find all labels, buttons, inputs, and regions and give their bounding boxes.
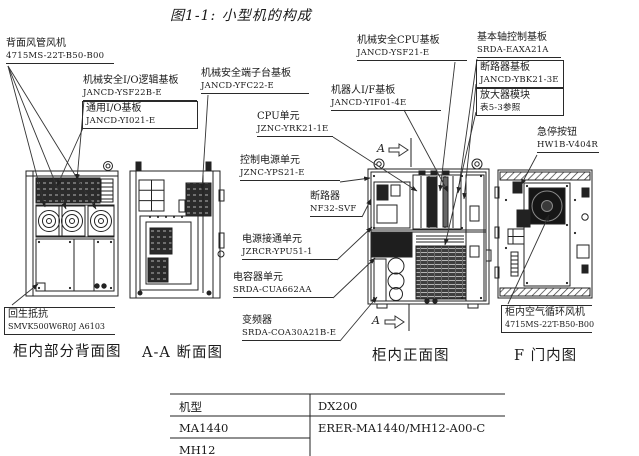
callout-cpu-unit: CPU单元 JZNC-YRK21-1E [257,111,333,137]
power-on-unit-label: 电源接通单元 [242,234,337,246]
callout-control-power-unit: 控制电源单元 JZNC-YPS21-E [240,155,340,181]
inverter-part: SRDA-COA30A21B-E [242,327,340,339]
callout-general-io-board: 通用I/O基板 JANCD-YI021-E [82,101,198,129]
control-power-unit-part: JZNC-YPS21-E [240,167,340,179]
rear-duct-fan-part: 4715MS-22T-B50-B00 [6,50,114,62]
callout-robot-if-board: 机器人I/F基板 JANCD-YIF01-4E [331,85,441,111]
breaker-board-label: 断路器基板 [480,62,560,74]
callout-inverter: 变频器 SRDA-COA30A21B-E [242,315,340,341]
table-cell-model-1: MA1440 [179,421,228,435]
caption-front-view: 柜内正面图 [372,344,450,365]
cabinet-air-fan-label: 柜内空气循环风机 [505,307,589,319]
table-header-model: 机型 [179,399,202,415]
section-view-drawing [130,162,224,298]
basic-axis-board-part: SRDA-EAXA21A [477,44,561,56]
estop-button-label: 急停按钮 [537,127,599,139]
amplifier-module-part: 表5-3参照 [480,102,560,114]
cpu-unit-label: CPU单元 [257,111,333,123]
cabinet-air-fan-part: 4715MS-22T-B50-B00 [505,319,589,331]
callout-ms-cpu-board: 机械安全CPU基板 JANCD-YSF21-E [357,35,467,61]
cpu-unit-part: JZNC-YRK21-1E [257,123,333,135]
caption-section-view: A-A 断面图 [142,341,223,362]
breaker-part: NF32-SVF [310,203,362,215]
ms-cpu-board-label: 机械安全CPU基板 [357,35,467,47]
amplifier-module-label: 放大器模块 [480,90,560,102]
front-view-drawing [368,138,491,331]
callout-basic-axis-board: 基本轴控制基板 SRDA-EAXA21A [477,32,561,58]
callout-amplifier-module: 放大器模块 表5-3参照 [476,88,564,116]
section-marker-top: A [377,142,385,155]
callout-breaker-board: 断路器基板 JANCD-YBK21-3E [476,60,564,88]
inverter-label: 变频器 [242,315,340,327]
callout-ms-terminal-board: 机械安全端子台基板 JANCD-YFC22-E [201,68,309,94]
regen-resistor-part: SMVK500W6R0J A6103 [8,321,112,333]
caption-door-view: F 门内图 [514,344,577,365]
ms-terminal-board-part: JANCD-YFC22-E [201,80,309,92]
breaker-label: 断路器 [310,191,362,203]
figure-title: 图1-1: 小型机的构成 [170,5,312,25]
capacitor-unit-part: SRDA-CUA662AA [233,284,333,296]
general-io-board-part: JANCD-YI021-E [86,115,194,127]
basic-axis-board-label: 基本轴控制基板 [477,32,561,44]
regen-resistor-label: 回生抵抗 [8,309,112,321]
general-io-board-label: 通用I/O基板 [86,103,194,115]
ms-cpu-board-part: JANCD-YSF21-E [357,47,467,59]
callout-ms-io-logic-board: 机械安全I/O逻辑基板 JANCD-YSF22B-E [83,75,197,101]
breaker-board-part: JANCD-YBK21-3E [480,74,560,86]
door-view-drawing [495,170,592,298]
capacitor-unit-label: 电容器单元 [233,272,333,284]
estop-button-part: HW1B-V404R [537,139,599,151]
callout-capacitor-unit: 电容器单元 SRDA-CUA662AA [233,272,333,298]
callout-rear-duct-fan: 背面风管风机 4715MS-22T-B50-B00 [6,38,114,64]
robot-if-board-label: 机器人I/F基板 [331,85,441,97]
table-cell-model-2: MH12 [179,443,215,456]
control-power-unit-label: 控制电源单元 [240,155,340,167]
ms-terminal-board-label: 机械安全端子台基板 [201,68,309,80]
table-header-controller: DX200 [318,399,357,413]
table-cell-order-no: ERER-MA1440/MH12-A00-C [318,421,485,435]
ms-io-logic-board-part: JANCD-YSF22B-E [83,87,197,99]
callout-power-on-unit: 电源接通单元 JZRCR-YPU51-1 [242,234,337,260]
ms-io-logic-board-label: 机械安全I/O逻辑基板 [83,75,197,87]
manual-page: 图1-1: 小型机的构成 背面风管风机 4715MS-22T-B50-B00 机… [0,0,639,456]
callout-cabinet-air-fan: 柜内空气循环风机 4715MS-22T-B50-B00 [501,305,592,333]
callout-estop-button: 急停按钮 HW1B-V404R [537,127,599,153]
rear-view-drawing [26,162,118,297]
caption-rear-view: 柜内部分背面图 [13,340,122,361]
power-on-unit-part: JZRCR-YPU51-1 [242,246,337,258]
callout-breaker: 断路器 NF32-SVF [310,191,362,217]
callout-regen-resistor: 回生抵抗 SMVK500W6R0J A6103 [4,307,115,335]
robot-if-board-part: JANCD-YIF01-4E [331,97,441,109]
section-marker-bottom: A [372,314,380,327]
rear-duct-fan-label: 背面风管风机 [6,38,114,50]
